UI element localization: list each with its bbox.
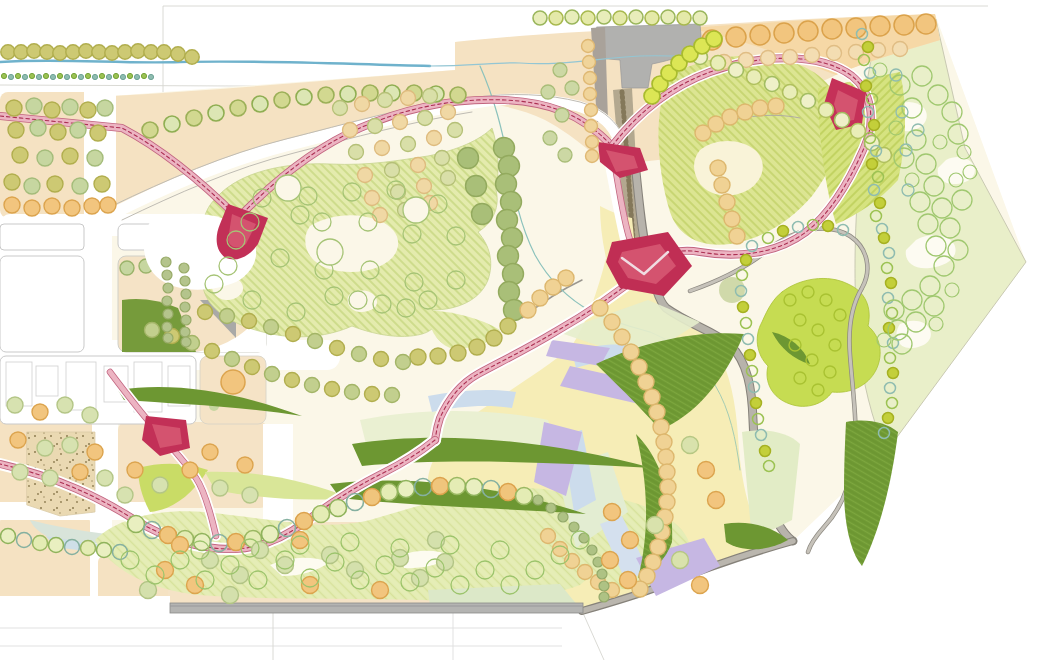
- meadow-ring-row-8: [262, 526, 279, 543]
- garden-tan-arc-12: [660, 479, 676, 495]
- west-block-olive-3: [8, 122, 24, 138]
- dot-columns-7: [179, 263, 189, 273]
- west-block-orange-4: [84, 198, 100, 214]
- row-top-olive-4: [53, 46, 67, 60]
- dot-columns-9: [181, 289, 191, 299]
- peach-arc-rings-9: [851, 124, 866, 139]
- grove-row-b-5: [245, 360, 260, 375]
- row-top-tiny-12: [85, 73, 90, 78]
- terrace-scatter-11: [375, 141, 390, 156]
- garden-tan-arc-9: [656, 434, 672, 450]
- plaza-col-tan-1: [583, 56, 596, 69]
- mid-block-scatter-7: [242, 487, 258, 503]
- dot-columns-6: [163, 333, 173, 343]
- west-block-olive-8: [4, 174, 20, 190]
- west-block-olive-1: [44, 102, 60, 118]
- meadow-ring-row-15: [381, 484, 398, 501]
- row-top-tiny-13: [92, 74, 97, 79]
- road-tan-arc-0: [520, 302, 536, 318]
- terrace-scatter-19: [365, 191, 380, 206]
- row-top-olive-3: [40, 45, 54, 59]
- dot-columns-11: [181, 315, 191, 325]
- boundary-bar: [170, 603, 583, 613]
- grove-row-a-7: [352, 347, 367, 362]
- row-top-tiny-17: [120, 74, 125, 79]
- terrace-scatter-15: [358, 168, 373, 183]
- meadow-dot-arc-9: [599, 592, 609, 602]
- street-gap-8: [0, 596, 170, 614]
- eastloop-tan-col-2: [719, 194, 735, 210]
- garden-tan-arc-b-1: [553, 542, 568, 557]
- garden-tan-arc-8: [653, 419, 669, 435]
- string-east-a-10: [867, 159, 878, 170]
- row-top-olive-8: [105, 46, 119, 60]
- row-top-tiny-16: [113, 73, 118, 78]
- terrace-scatter-17: [411, 158, 426, 173]
- south-field-scatter-12: [157, 562, 174, 579]
- sage-chain-tail-1: [486, 330, 502, 346]
- corridor-rings-5: [252, 96, 268, 112]
- garden-tan-arc-7: [649, 404, 665, 420]
- grove-dark-sage-1: [466, 176, 487, 197]
- west-block-olive-6: [12, 147, 28, 163]
- west-lower-scatter-6: [62, 437, 78, 453]
- eastloop-tan-col-4: [729, 228, 745, 244]
- block-outline-2: [0, 256, 84, 352]
- meadow-ring-row-22: [500, 484, 517, 501]
- west-block-olive-5: [90, 125, 106, 141]
- garden-tan-arc-3: [623, 344, 639, 360]
- plaza-col-tan-4: [585, 104, 598, 117]
- west-block-sage-3: [30, 120, 46, 136]
- peach-orange-row-8: [894, 15, 914, 35]
- grove-row-b-10: [345, 385, 360, 400]
- west-lower-scatter-2: [57, 397, 73, 413]
- garden-tan-arc-11: [659, 464, 675, 480]
- west-block-orange-1: [24, 200, 40, 216]
- yellow-scatter-1: [622, 532, 639, 549]
- grove-row-b-3: [205, 344, 220, 359]
- corridor-rings-1: [164, 116, 180, 132]
- row-top-olive-0: [1, 45, 15, 59]
- terrace-scatter-4: [423, 89, 438, 104]
- west-lower-scatter-0: [7, 397, 23, 413]
- peach-tan-rings-3: [783, 50, 798, 65]
- meadow-ring-row-west-0: [1, 529, 16, 544]
- terrace-scatter-10: [349, 145, 364, 160]
- dot-columns-1: [162, 270, 172, 280]
- garden-tan-arc-b-3: [578, 565, 593, 580]
- plaza-top-rings-0: [533, 11, 547, 25]
- west-block-orange-2: [44, 198, 60, 214]
- mid-block-scatter-6: [202, 444, 218, 460]
- row-top-tiny-19: [134, 74, 139, 79]
- meadow-ring-row-11: [313, 506, 330, 523]
- plaza-sage-scatter-5: [565, 81, 579, 95]
- mid-block-scatter-2: [182, 462, 198, 478]
- peach-orange-row-5: [822, 19, 842, 39]
- court-tree: [221, 370, 245, 394]
- grove-row-a-9: [396, 355, 411, 370]
- west-block-orange-3: [64, 200, 80, 216]
- meadow-ring-row-12: [330, 500, 347, 517]
- plaza-top-rings-9: [677, 11, 691, 25]
- grove-white-circles-1: [403, 197, 429, 223]
- garden-tan-arc-1: [604, 314, 620, 330]
- peach-tan-rings-8: [893, 42, 908, 57]
- peach-tan-rings-2: [761, 51, 776, 66]
- street-gap-7: [263, 424, 293, 520]
- plaza-top-rings-1: [549, 11, 563, 25]
- meadow-ring-row-19: [449, 478, 466, 495]
- road-tan-arc-3: [558, 270, 574, 286]
- corridor-rings-0: [142, 122, 158, 138]
- string-hairpin-top-1: [778, 226, 789, 237]
- mid-block-scatter-3: [212, 480, 228, 496]
- grove-row-b-12: [385, 388, 400, 403]
- string-hairpin-west-1: [741, 255, 752, 266]
- terrace-scatter-9: [441, 105, 456, 120]
- peach-tan-rings-5: [827, 46, 842, 61]
- terrace-scatter-14: [448, 123, 463, 138]
- row-top-tiny-0: [1, 73, 6, 78]
- plaza-top-rings-6: [629, 10, 643, 24]
- grove-dark-sage-0: [458, 148, 479, 169]
- row-top-tiny-14: [99, 73, 104, 78]
- meadow-dot-arc-1: [546, 503, 556, 513]
- dot-columns-13: [181, 337, 191, 347]
- yellow-scatter-0: [604, 504, 621, 521]
- string-hairpin-west-7: [745, 350, 756, 361]
- south-field-scatter-17: [437, 554, 454, 571]
- plaza-sage-scatter-2: [555, 108, 569, 122]
- grove-row-a-2: [242, 314, 257, 329]
- west-block-orange-5: [100, 197, 116, 213]
- string-hairpin-east-9: [888, 368, 899, 379]
- terrace-scatter-21: [417, 179, 432, 194]
- west-lower-scatter-1: [32, 404, 48, 420]
- west-block-orange-0: [4, 197, 20, 213]
- eastloop-tan-col-3: [724, 211, 740, 227]
- corridor-rings-2: [186, 110, 202, 126]
- west-block-sage-0: [26, 98, 42, 114]
- west-lower-scatter-8: [12, 464, 28, 480]
- sage-chain-tail-0: [500, 318, 516, 334]
- terrace-scatter-20: [391, 185, 406, 200]
- string-east-a-4: [861, 81, 872, 92]
- dot-columns-0: [161, 257, 171, 267]
- yellow-scatter-9: [708, 492, 725, 509]
- south-field-scatter-8: [347, 562, 364, 579]
- grove-row-a-1: [220, 309, 235, 324]
- west-lower-scatter-11: [97, 470, 113, 486]
- mid-block-scatter-0: [127, 462, 143, 478]
- peach-arc-rings-1: [711, 56, 726, 71]
- terrace-scatter-5: [343, 123, 358, 138]
- peach-orange-row-4: [798, 21, 818, 41]
- south-field-scatter-3: [187, 577, 204, 594]
- plaza-top-rings-10: [693, 11, 707, 25]
- grove-row-b-6: [265, 367, 280, 382]
- south-field-scatter-15: [292, 532, 309, 549]
- row-top-olive-14: [185, 50, 199, 64]
- grove-clearing-1: [305, 215, 398, 272]
- south-field-scatter-2: [232, 567, 249, 584]
- meadow-ring-row-10: [296, 513, 313, 530]
- plaza-col-tan-6: [586, 136, 599, 149]
- garden-tan-arc-13: [659, 494, 675, 510]
- terrace-scatter-18: [435, 151, 450, 166]
- meadow-dot-arc-3: [569, 522, 579, 532]
- west-lower-scatter-7: [87, 444, 103, 460]
- west-lower-scatter-3: [82, 407, 98, 423]
- terrace-scatter-8: [418, 111, 433, 126]
- garden-block-trees-0: [120, 261, 134, 275]
- terrace-scatter-12: [401, 137, 416, 152]
- meadow-ring-row-23: [516, 488, 533, 505]
- row-top-tiny-7: [50, 74, 55, 79]
- garden-tan-arc-b-0: [541, 529, 556, 544]
- garden-tan-arc-4: [631, 359, 647, 375]
- peach-orange-row-7: [870, 16, 890, 36]
- road-tan-arc-1: [532, 290, 548, 306]
- plaza-top-rings-3: [581, 11, 595, 25]
- peach-orange-row-1: [726, 27, 746, 47]
- dot-columns-5: [162, 322, 172, 332]
- string-hairpin-west-4: [738, 302, 749, 313]
- block-outline-1: [0, 224, 84, 250]
- meadow-ring-row-20: [466, 479, 483, 496]
- site-plan-map: [0, 0, 1044, 660]
- plaza-col-tan-0: [582, 40, 595, 53]
- meadow-dot-arc-8: [599, 581, 609, 591]
- row-top-tiny-21: [148, 74, 153, 79]
- plaza-top-rings-4: [597, 10, 611, 24]
- meadow-dot-arc-0: [533, 495, 543, 505]
- eastloop-tan-col-0: [710, 160, 726, 176]
- eastloop-tan-arc-2: [722, 109, 738, 125]
- mid-block-scatter-5: [117, 487, 133, 503]
- peach-tan-rings-4: [805, 48, 820, 63]
- row-top-olive-2: [27, 44, 41, 58]
- dot-columns-3: [162, 296, 172, 306]
- row-top-olive-9: [118, 45, 132, 59]
- grove-row-b-9: [325, 382, 340, 397]
- west-block-sage-4: [70, 122, 86, 138]
- row-top-tiny-10: [71, 73, 76, 78]
- corridor-rings-9: [340, 86, 356, 102]
- grove-row-b-11: [365, 387, 380, 402]
- string-hairpin-east-12: [883, 413, 894, 424]
- south-field-scatter-11: [412, 570, 429, 587]
- mid-block-scatter-1: [152, 477, 168, 493]
- west-lower-scatter-10: [72, 464, 88, 480]
- yellow-scatter-3: [602, 552, 619, 569]
- west-block-olive-4: [50, 124, 66, 140]
- garden-tan-arc-5: [638, 374, 654, 390]
- meadow-dot-arc-7: [597, 569, 607, 579]
- meadow-ring-row-0: [128, 516, 145, 533]
- row-top-tiny-8: [57, 73, 62, 78]
- string-east-a-7: [869, 120, 880, 131]
- meadow-ring-row-west-3: [49, 538, 64, 553]
- yellow-scatter-4: [620, 572, 637, 589]
- row-top-olive-6: [79, 44, 93, 58]
- yellow-scatter-8: [682, 437, 699, 454]
- string-hairpin-top-4: [823, 221, 834, 232]
- row-top-olive-11: [144, 45, 158, 59]
- meadow-ring-row-6: [228, 534, 245, 551]
- corridor-rings-3: [208, 105, 224, 121]
- peach-orange-row-9: [916, 14, 936, 34]
- terrace-scatter-13: [427, 131, 442, 146]
- eastloop-tan-arc-4: [752, 100, 768, 116]
- grove-row-b-4: [225, 352, 240, 367]
- terrace-scatter-2: [378, 93, 393, 108]
- south-field-scatter-1: [202, 552, 219, 569]
- terrace-scatter-6: [368, 119, 383, 134]
- terrace-scatter-16: [385, 163, 400, 178]
- meadow-dot-arc-2: [558, 512, 568, 522]
- grove-row-a-6: [330, 341, 345, 356]
- row-top-tiny-9: [64, 74, 69, 79]
- row-top-olive-13: [171, 47, 185, 61]
- peach-orange-row-2: [750, 25, 770, 45]
- terrace-scatter-23: [373, 208, 388, 223]
- terrace-scatter-3: [401, 91, 416, 106]
- yellow-scatter-7: [698, 462, 715, 479]
- plaza-col-tan-3: [584, 88, 597, 101]
- plaza-bright-rings-6: [706, 31, 722, 47]
- west-block-sage-2: [97, 100, 113, 116]
- sage-chain-tail-3: [450, 345, 466, 361]
- dot-columns-8: [180, 276, 190, 286]
- row-top-olive-1: [14, 45, 28, 59]
- row-top-tiny-2: [15, 73, 20, 78]
- grove-row-b-8: [305, 378, 320, 393]
- plaza-sage-scatter-0: [553, 63, 567, 77]
- row-top-tiny-18: [127, 73, 132, 78]
- meadow-dot-arc-5: [587, 545, 597, 555]
- grove-row-a-3: [264, 320, 279, 335]
- row-top-tiny-5: [36, 74, 41, 79]
- row-top-tiny-15: [106, 74, 111, 79]
- plaza-sage-scatter-1: [541, 85, 555, 99]
- west-block-olive-7: [62, 148, 78, 164]
- garden-tan-arc-10: [658, 449, 674, 465]
- garden-tan-arc-16: [650, 539, 666, 555]
- yellow-scatter-5: [672, 552, 689, 569]
- terrace-scatter-1: [355, 97, 370, 112]
- meadow-ring-row-west-2: [33, 536, 48, 551]
- west-lower-scatter-4: [10, 432, 26, 448]
- grove-row-a-4: [286, 327, 301, 342]
- sage-chain-tail-4: [430, 348, 446, 364]
- terrace-scatter-7: [393, 115, 408, 130]
- south-field-scatter-14: [222, 587, 239, 604]
- west-block-sage-8: [72, 178, 88, 194]
- stream-main: [0, 61, 430, 66]
- terrace-scatter-0: [333, 101, 348, 116]
- row-top-tiny-20: [141, 73, 146, 78]
- row-top-tiny-4: [29, 73, 34, 78]
- street-line-5: [583, 613, 604, 660]
- plaza-sage-scatter-4: [558, 148, 572, 162]
- eastloop-tan-arc-5: [768, 98, 784, 114]
- corridor-rings-4: [230, 100, 246, 116]
- peach-arc-rings-2: [729, 63, 744, 78]
- grove-row-b-0: [145, 323, 160, 338]
- west-block-olive-2: [80, 102, 96, 118]
- eastloop-tan-col-1: [714, 177, 730, 193]
- corridor-rings-6: [274, 92, 290, 108]
- grove-white-circles-0: [317, 239, 343, 265]
- mid-block-scatter-4: [237, 457, 253, 473]
- west-block-sage-7: [24, 178, 40, 194]
- grove-dark-sage-2: [472, 204, 493, 225]
- peach-arc-rings-6: [801, 94, 816, 109]
- meadow-ring-row-14: [364, 489, 381, 506]
- garden-tan-arc-6: [644, 389, 660, 405]
- yellow-scatter-2: [647, 517, 664, 534]
- garden-tan-arc-2: [614, 329, 630, 345]
- peach-arc-rings-5: [783, 85, 798, 100]
- corridor-rings-8: [318, 87, 334, 103]
- row-top-tiny-11: [78, 74, 83, 79]
- south-field-scatter-5: [277, 557, 294, 574]
- row-top-tiny-1: [8, 74, 13, 79]
- yellow-scatter-6: [692, 577, 709, 594]
- dot-columns-10: [180, 302, 190, 312]
- meadow-ring-row-18: [432, 478, 449, 495]
- west-lower-scatter-9: [42, 470, 58, 486]
- string-hairpin-west-10: [751, 398, 762, 409]
- sage-chain-tail-5: [410, 349, 426, 365]
- south-field-scatter-9: [372, 582, 389, 599]
- plaza-top-rings-5: [613, 11, 627, 25]
- peach-arc-rings-8: [835, 113, 850, 128]
- row-top-olive-7: [92, 45, 106, 59]
- plaza-top-rings-7: [645, 11, 659, 25]
- row-top-tiny-3: [22, 74, 27, 79]
- string-hairpin-west-13: [760, 446, 771, 457]
- plaza-col-tan-5: [585, 120, 598, 133]
- plaza-col-tan-7: [586, 150, 599, 163]
- grove-row-b-7: [285, 373, 300, 388]
- plaza-top-rings-2: [565, 10, 579, 24]
- plan-viewport: [0, 0, 1044, 660]
- peach-arc-rings-3: [747, 70, 762, 85]
- peach-arc-rings-4: [765, 77, 780, 92]
- plaza-sage-scatter-3: [543, 131, 557, 145]
- grove-row-a-5: [308, 334, 323, 349]
- hedge-blade-7: [844, 420, 898, 566]
- meadow-ring-row-16: [398, 481, 415, 498]
- string-east-a-13: [875, 198, 886, 209]
- string-hairpin-east-6: [884, 323, 895, 334]
- dot-columns-12: [180, 327, 190, 337]
- grove-row-a-8: [374, 352, 389, 367]
- west-block-sage-6: [87, 150, 103, 166]
- plaza-col-tan-2: [584, 72, 597, 85]
- corridor-rings-7: [296, 89, 312, 105]
- peach-arc-rings-7: [819, 103, 834, 118]
- terrace-scatter-22: [441, 171, 456, 186]
- string-hairpin-east-3: [886, 278, 897, 289]
- west-block-olive-0: [6, 100, 22, 116]
- dot-columns-4: [163, 309, 173, 319]
- west-block-olive-10: [94, 176, 110, 192]
